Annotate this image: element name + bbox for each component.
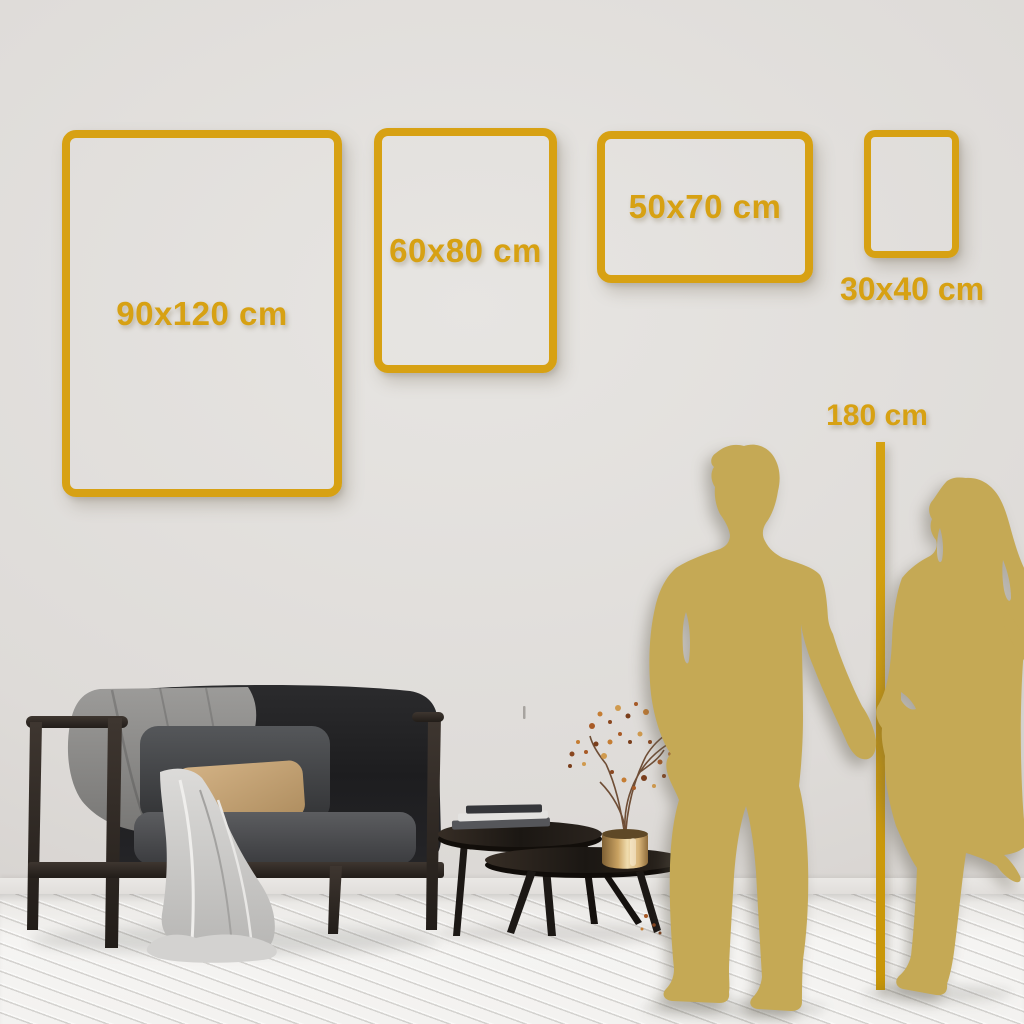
couple-silhouettes	[0, 0, 1024, 1024]
size-guide-scene: 90x120 cm 60x80 cm 50x70 cm 30x40 cm 180…	[0, 0, 1024, 1024]
man-silhouette	[649, 445, 876, 1011]
woman-silhouette	[876, 477, 1024, 995]
